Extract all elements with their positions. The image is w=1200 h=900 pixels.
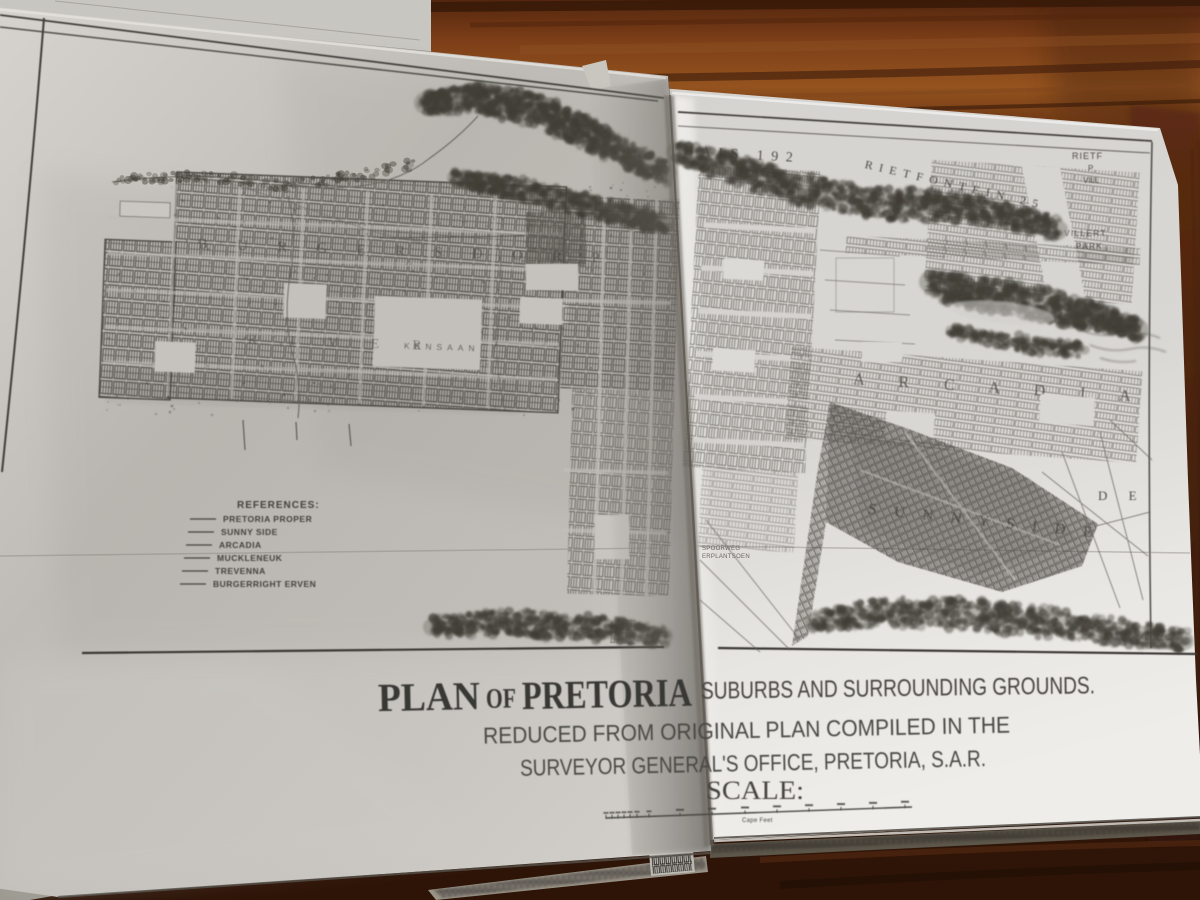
svg-text:SCALE:: SCALE: bbox=[706, 776, 804, 805]
svg-text:REFERENCES:: REFERENCES: bbox=[237, 500, 320, 511]
svg-text:PLAN: PLAN bbox=[377, 673, 480, 720]
svg-text:BURGERRIGHT ERVEN: BURGERRIGHT ERVEN bbox=[213, 579, 316, 589]
svg-text:PARK: PARK bbox=[1076, 242, 1103, 251]
svg-text:PRETORIA PROPER: PRETORIA PROPER bbox=[223, 514, 312, 524]
svg-text:ERPLANTSOEN: ERPLANTSOEN bbox=[702, 554, 750, 560]
svg-text:TREVENNA: TREVENNA bbox=[215, 566, 266, 576]
svg-text:Cape Feet: Cape Feet bbox=[742, 818, 773, 824]
svg-text:MUCKLENEUK: MUCKLENEUK bbox=[1122, 633, 1176, 642]
svg-text:SPOORWEG: SPOORWEG bbox=[702, 546, 740, 552]
svg-text:RIETF: RIETF bbox=[1072, 151, 1103, 161]
svg-text:VILLERT.: VILLERT. bbox=[1064, 228, 1109, 238]
svg-text:VILL: VILL bbox=[1083, 176, 1100, 185]
svg-text:SUBURBS AND SURROUNDING GROUND: SUBURBS AND SURROUNDING GROUNDS. bbox=[701, 672, 1095, 704]
svg-text:ARCADIA: ARCADIA bbox=[219, 540, 262, 550]
svg-text:PRETORIA: PRETORIA bbox=[521, 670, 692, 719]
svg-text:D E: D E bbox=[1098, 488, 1146, 503]
svg-text:SUNNY SIDE: SUNNY SIDE bbox=[221, 527, 278, 537]
svg-text:OF: OF bbox=[486, 683, 517, 715]
svg-text:P: P bbox=[1088, 164, 1093, 173]
svg-text:MUCKLENEUK: MUCKLENEUK bbox=[217, 553, 283, 563]
